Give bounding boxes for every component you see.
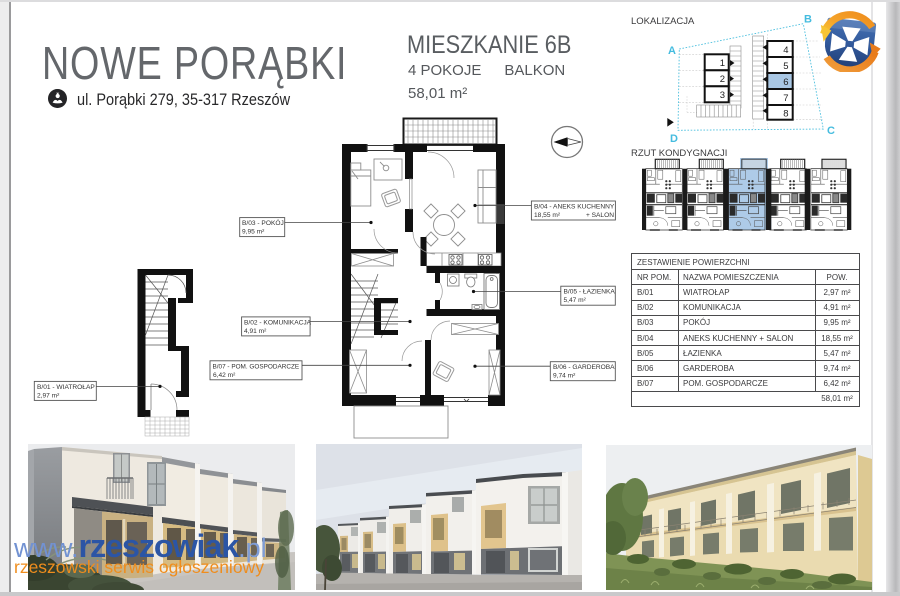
- svg-text:5: 5: [783, 61, 788, 72]
- svg-text:B/01 - WIATROŁAP: B/01 - WIATROŁAP: [37, 384, 95, 391]
- svg-text:A: A: [668, 45, 676, 57]
- svg-text:2,97 m²: 2,97 m²: [37, 392, 60, 399]
- svg-text:6,42 m²: 6,42 m²: [213, 372, 236, 379]
- svg-text:3: 3: [720, 90, 725, 101]
- svg-text:9,95 m²: 9,95 m²: [242, 229, 265, 236]
- svg-text:B/06 - GARDEROBA: B/06 - GARDEROBA: [553, 364, 615, 371]
- svg-text:B/04 - ANEKS KUCHENNY: B/04 - ANEKS KUCHENNY: [534, 204, 615, 211]
- svg-text:4: 4: [783, 45, 788, 56]
- svg-text:+ SALON: + SALON: [586, 212, 614, 219]
- svg-text:5,47 m²: 5,47 m²: [564, 297, 587, 304]
- svg-text:18,55 m²: 18,55 m²: [534, 212, 561, 219]
- svg-text:6: 6: [783, 77, 788, 88]
- svg-text:7: 7: [783, 93, 788, 104]
- svg-text:B: B: [804, 14, 812, 26]
- svg-text:1: 1: [720, 58, 725, 69]
- svg-text:D: D: [670, 133, 678, 145]
- svg-text:B/02 - KOMUNIKACJA: B/02 - KOMUNIKACJA: [244, 319, 312, 326]
- svg-text:8: 8: [783, 109, 788, 120]
- svg-text:B/03 - POKÓJ: B/03 - POKÓJ: [242, 218, 284, 227]
- svg-text:C: C: [827, 125, 835, 137]
- svg-text:9,74 m²: 9,74 m²: [553, 373, 576, 380]
- svg-text:B/05 - ŁAZIENKA: B/05 - ŁAZIENKA: [564, 289, 616, 296]
- svg-text:4,91 m²: 4,91 m²: [244, 328, 267, 335]
- svg-text:2: 2: [720, 74, 725, 85]
- svg-text:B/07 - POM. GOSPODARCZE: B/07 - POM. GOSPODARCZE: [213, 363, 300, 370]
